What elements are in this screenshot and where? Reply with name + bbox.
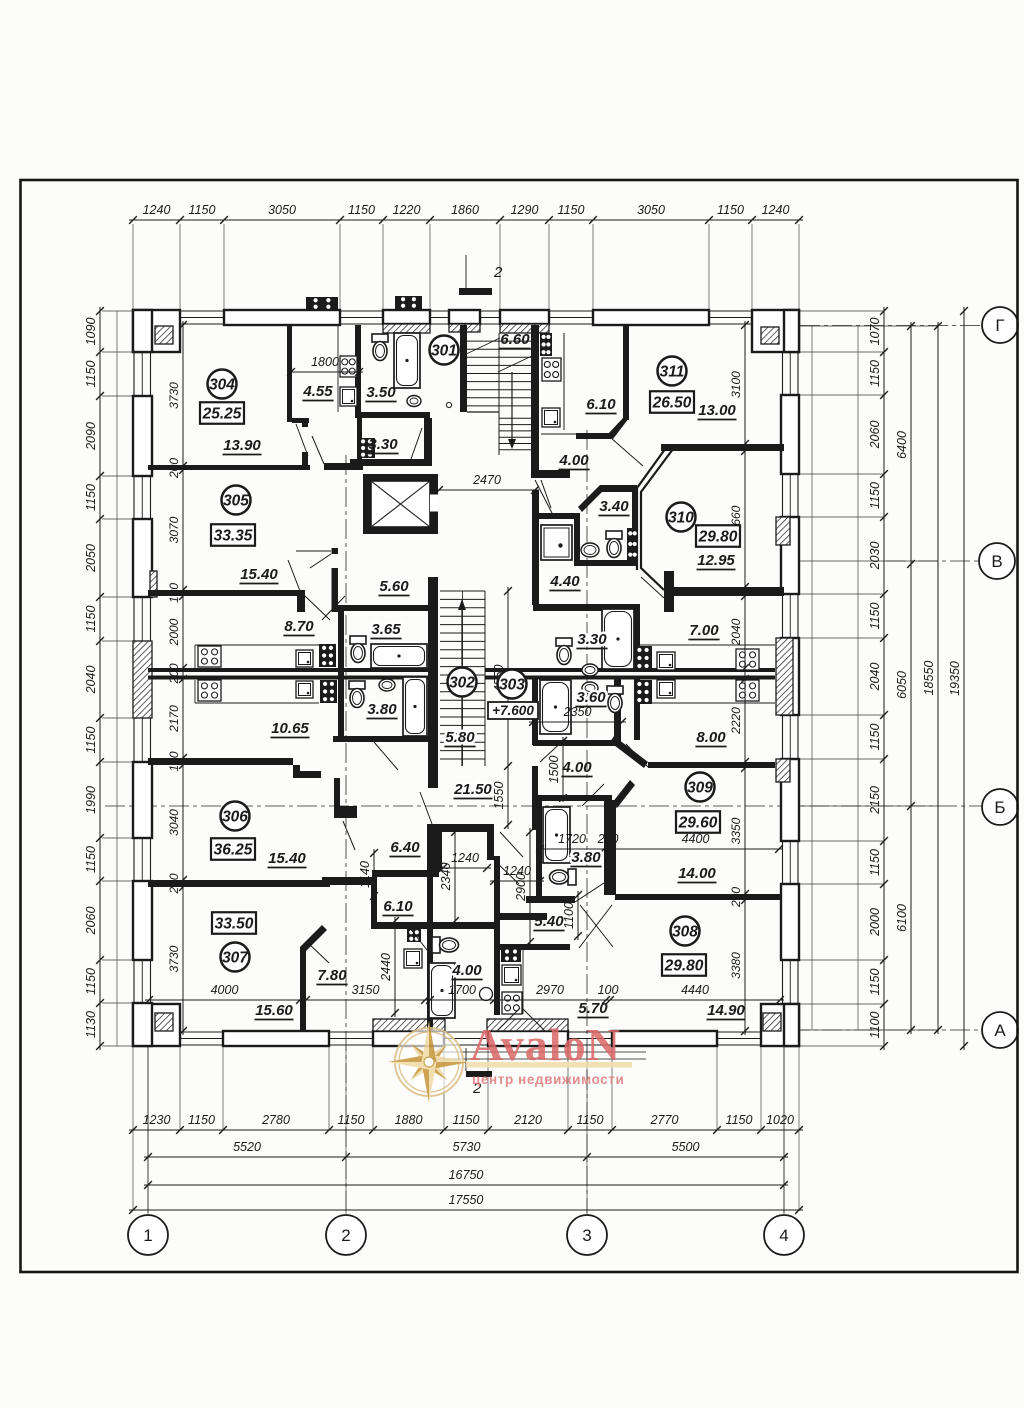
svg-text:6100: 6100 xyxy=(895,904,909,932)
svg-text:1150: 1150 xyxy=(453,1113,480,1127)
svg-text:1240: 1240 xyxy=(762,203,790,217)
svg-text:2000: 2000 xyxy=(868,908,882,937)
svg-text:2170: 2170 xyxy=(167,705,181,733)
svg-text:1090: 1090 xyxy=(84,318,98,346)
svg-text:2090: 2090 xyxy=(84,422,98,451)
svg-text:304: 304 xyxy=(209,377,235,394)
svg-text:2970: 2970 xyxy=(535,983,564,997)
svg-text:29.60: 29.60 xyxy=(678,815,718,832)
svg-text:10.65: 10.65 xyxy=(271,720,309,737)
svg-text:5.80: 5.80 xyxy=(445,729,475,746)
svg-text:310: 310 xyxy=(668,510,694,527)
svg-text:100: 100 xyxy=(167,751,181,771)
svg-text:1150: 1150 xyxy=(84,606,98,633)
svg-text:200: 200 xyxy=(167,873,181,894)
svg-text:5520: 5520 xyxy=(233,1140,261,1154)
svg-text:5.70: 5.70 xyxy=(578,1000,608,1017)
svg-text:1150: 1150 xyxy=(189,203,216,217)
svg-text:36.25: 36.25 xyxy=(214,842,253,859)
svg-text:1150: 1150 xyxy=(868,360,882,387)
svg-text:5.60: 5.60 xyxy=(379,578,409,595)
svg-text:13.90: 13.90 xyxy=(223,437,261,454)
svg-text:1550: 1550 xyxy=(492,782,506,810)
svg-text:1100: 1100 xyxy=(562,902,576,929)
svg-text:2040: 2040 xyxy=(868,663,882,692)
svg-text:1150: 1150 xyxy=(868,724,882,751)
svg-text:1150: 1150 xyxy=(726,1113,753,1127)
svg-text:4.00: 4.00 xyxy=(558,452,589,469)
svg-text:6.60: 6.60 xyxy=(500,331,530,348)
svg-text:1800: 1800 xyxy=(311,355,339,369)
svg-text:AvaloN: AvaloN xyxy=(470,1019,621,1070)
svg-text:4.40: 4.40 xyxy=(549,573,580,590)
svg-text:2780: 2780 xyxy=(261,1113,290,1127)
svg-text:3.80: 3.80 xyxy=(367,701,397,718)
svg-text:7.80: 7.80 xyxy=(317,967,347,984)
svg-text:2050: 2050 xyxy=(84,544,98,573)
svg-text:4440: 4440 xyxy=(681,983,709,997)
svg-text:303: 303 xyxy=(499,677,525,694)
svg-text:200: 200 xyxy=(167,663,181,684)
svg-text:8.00: 8.00 xyxy=(696,729,726,746)
svg-text:1150: 1150 xyxy=(717,203,744,217)
svg-text:2: 2 xyxy=(341,1226,350,1245)
svg-text:1150: 1150 xyxy=(348,203,375,217)
svg-text:5.40: 5.40 xyxy=(534,913,564,930)
svg-text:1150: 1150 xyxy=(868,482,882,509)
svg-text:100: 100 xyxy=(598,983,619,997)
svg-text:2220: 2220 xyxy=(729,707,743,735)
svg-text:1700: 1700 xyxy=(448,983,476,997)
svg-text:2: 2 xyxy=(493,264,503,281)
svg-text:2440: 2440 xyxy=(379,953,393,982)
svg-text:1: 1 xyxy=(143,1226,152,1245)
svg-text:+7.600: +7.600 xyxy=(492,703,534,718)
svg-text:200: 200 xyxy=(597,832,619,846)
svg-text:1220: 1220 xyxy=(393,203,421,217)
svg-text:308: 308 xyxy=(672,924,698,941)
svg-text:1720: 1720 xyxy=(558,832,586,846)
svg-text:1150: 1150 xyxy=(558,203,585,217)
svg-text:15.60: 15.60 xyxy=(255,1002,293,1019)
svg-text:1150: 1150 xyxy=(84,727,98,754)
svg-text:3730: 3730 xyxy=(167,382,181,409)
svg-text:3040: 3040 xyxy=(167,809,181,836)
svg-text:21.50: 21.50 xyxy=(453,781,492,798)
svg-text:1150: 1150 xyxy=(84,361,98,388)
svg-text:1130: 1130 xyxy=(84,1011,98,1038)
svg-text:1230: 1230 xyxy=(143,1113,171,1127)
svg-text:3.30: 3.30 xyxy=(577,631,607,648)
svg-text:100: 100 xyxy=(167,583,181,603)
svg-text:14.90: 14.90 xyxy=(707,1002,745,1019)
svg-text:2060: 2060 xyxy=(84,907,98,936)
svg-text:Г: Г xyxy=(995,316,1004,335)
svg-text:19350: 19350 xyxy=(948,661,962,696)
svg-text:3.50: 3.50 xyxy=(366,384,396,401)
svg-text:33.50: 33.50 xyxy=(215,916,254,933)
svg-text:1100: 1100 xyxy=(868,1012,882,1039)
svg-text:15.40: 15.40 xyxy=(240,566,278,583)
svg-text:15.40: 15.40 xyxy=(268,850,306,867)
svg-text:1140: 1140 xyxy=(358,861,372,888)
svg-text:1150: 1150 xyxy=(338,1113,365,1127)
svg-text:2040: 2040 xyxy=(729,618,743,646)
svg-text:2470: 2470 xyxy=(472,473,501,487)
svg-text:3380: 3380 xyxy=(729,952,743,979)
svg-text:1500: 1500 xyxy=(547,756,561,784)
svg-text:309: 309 xyxy=(687,780,713,797)
svg-text:17550: 17550 xyxy=(449,1193,484,1207)
svg-text:6.40: 6.40 xyxy=(390,839,420,856)
svg-text:2340: 2340 xyxy=(439,863,453,892)
svg-text:2150: 2150 xyxy=(868,786,882,815)
svg-text:200: 200 xyxy=(167,458,181,479)
svg-text:33.35: 33.35 xyxy=(214,528,253,545)
svg-text:6400: 6400 xyxy=(895,431,909,459)
svg-text:311: 311 xyxy=(660,364,685,381)
svg-text:16750: 16750 xyxy=(449,1168,484,1182)
svg-text:301: 301 xyxy=(431,343,457,360)
svg-text:3150: 3150 xyxy=(352,983,380,997)
svg-text:3.80: 3.80 xyxy=(571,849,601,866)
svg-text:1150: 1150 xyxy=(188,1113,215,1127)
svg-text:12.95: 12.95 xyxy=(697,552,735,569)
svg-text:Б: Б xyxy=(994,798,1005,817)
svg-text:25.25: 25.25 xyxy=(202,406,242,423)
svg-text:3.60: 3.60 xyxy=(576,689,606,706)
svg-text:26.50: 26.50 xyxy=(652,395,692,412)
svg-text:5500: 5500 xyxy=(672,1140,700,1154)
svg-text:4.00: 4.00 xyxy=(451,962,482,979)
svg-text:1070: 1070 xyxy=(868,318,882,346)
svg-text:305: 305 xyxy=(223,493,249,510)
svg-text:3050: 3050 xyxy=(637,203,665,217)
svg-text:1150: 1150 xyxy=(868,603,882,630)
svg-text:1150: 1150 xyxy=(84,846,98,873)
svg-text:18550: 18550 xyxy=(922,661,936,696)
svg-text:3070: 3070 xyxy=(167,516,181,543)
svg-text:7.00: 7.00 xyxy=(689,622,719,639)
svg-text:306: 306 xyxy=(222,809,248,826)
svg-text:4: 4 xyxy=(779,1226,788,1245)
svg-text:3100: 3100 xyxy=(729,371,743,398)
svg-text:2900: 2900 xyxy=(514,873,528,902)
svg-text:29.80: 29.80 xyxy=(664,958,704,975)
svg-text:А: А xyxy=(994,1021,1006,1040)
svg-text:2060: 2060 xyxy=(868,421,882,450)
svg-text:1880: 1880 xyxy=(395,1113,423,1127)
svg-text:200: 200 xyxy=(729,887,743,908)
svg-text:13.00: 13.00 xyxy=(698,402,736,419)
svg-text:302: 302 xyxy=(449,675,475,692)
svg-text:1150: 1150 xyxy=(868,849,882,876)
svg-text:6050: 6050 xyxy=(895,671,909,699)
svg-text:4.55: 4.55 xyxy=(302,383,333,400)
svg-text:1290: 1290 xyxy=(511,203,539,217)
svg-text:центр недвижимости: центр недвижимости xyxy=(472,1072,624,1087)
svg-text:1150: 1150 xyxy=(868,969,882,996)
svg-text:1860: 1860 xyxy=(451,203,479,217)
svg-text:6.10: 6.10 xyxy=(383,898,413,915)
svg-text:2030: 2030 xyxy=(868,542,882,571)
svg-text:2040: 2040 xyxy=(84,666,98,695)
svg-text:14.00: 14.00 xyxy=(678,865,716,882)
svg-text:В: В xyxy=(991,552,1002,571)
svg-text:1150: 1150 xyxy=(84,484,98,511)
svg-text:1150: 1150 xyxy=(577,1113,604,1127)
svg-text:3.65: 3.65 xyxy=(371,621,401,638)
svg-text:2770: 2770 xyxy=(650,1113,679,1127)
svg-text:3: 3 xyxy=(582,1226,591,1245)
svg-text:8.70: 8.70 xyxy=(284,618,314,635)
svg-text:3.30: 3.30 xyxy=(368,436,398,453)
svg-text:4000: 4000 xyxy=(211,983,239,997)
svg-text:3350: 3350 xyxy=(729,817,743,844)
svg-text:4400: 4400 xyxy=(682,832,710,846)
svg-text:3050: 3050 xyxy=(268,203,296,217)
svg-text:4.00: 4.00 xyxy=(561,759,592,776)
svg-text:2000: 2000 xyxy=(167,618,181,646)
svg-text:3.40: 3.40 xyxy=(599,498,629,515)
svg-text:1990: 1990 xyxy=(84,786,98,814)
svg-text:3730: 3730 xyxy=(167,945,181,972)
svg-text:6.10: 6.10 xyxy=(586,396,616,413)
svg-text:1150: 1150 xyxy=(84,968,98,995)
svg-text:5730: 5730 xyxy=(453,1140,481,1154)
svg-text:1020: 1020 xyxy=(766,1113,794,1127)
svg-text:29.80: 29.80 xyxy=(698,529,738,546)
svg-text:2120: 2120 xyxy=(513,1113,542,1127)
svg-text:307: 307 xyxy=(222,950,249,967)
svg-text:1240: 1240 xyxy=(143,203,171,217)
